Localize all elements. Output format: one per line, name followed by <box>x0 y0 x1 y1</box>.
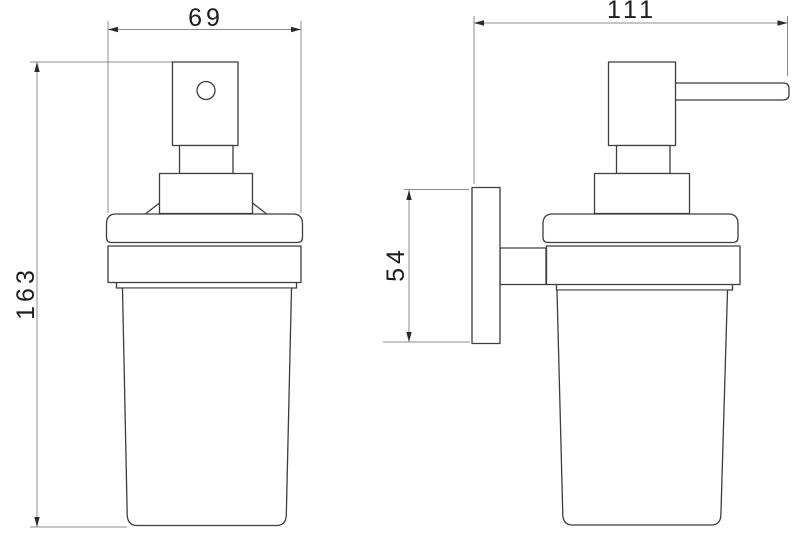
pump-head-side <box>609 62 676 146</box>
holder-lid-front <box>107 214 303 243</box>
glass-cup-side <box>557 291 728 526</box>
pump-neck-side <box>617 146 671 174</box>
arrowhead-bottom <box>406 332 411 342</box>
arrowhead-top <box>406 190 411 200</box>
pump-neck-front <box>180 146 234 174</box>
dimension-label-front-height: 163 <box>12 266 40 320</box>
arrowhead-bottom <box>34 517 39 527</box>
arrowhead-top <box>34 62 39 72</box>
arrowhead-left <box>474 20 484 25</box>
holder-lid-side <box>543 214 738 243</box>
pump-spout-side <box>672 83 789 100</box>
dimension-label-side-depth: 111 <box>607 0 657 24</box>
pump-collar-front <box>160 174 253 214</box>
pump-collar-side <box>595 174 690 214</box>
pump-head-front <box>173 62 239 146</box>
dispenser-drawing: 69 163 111 54 <box>0 0 800 533</box>
arrowhead-right <box>778 20 788 25</box>
glass-rim-front <box>108 246 301 283</box>
glass-rim-step-front <box>117 283 297 289</box>
dimension-label-bracket-height: 54 <box>382 246 410 282</box>
dimension-label-front-width: 69 <box>188 4 224 32</box>
front-view <box>107 62 303 526</box>
wall-mount-plate <box>472 188 500 344</box>
mounting-arm <box>500 248 546 285</box>
side-view <box>472 62 789 525</box>
glass-cup-front <box>123 289 292 526</box>
arrowhead-left <box>108 27 118 32</box>
glass-rim-side <box>547 246 741 285</box>
arrowhead-right <box>291 27 301 32</box>
glass-rim-step-side <box>557 285 733 291</box>
dimension-bracket-height: 54 <box>382 190 470 343</box>
technical-drawing-canvas: 69 163 111 54 <box>0 0 800 533</box>
collar-chamfer-left <box>146 203 160 214</box>
collar-chamfer-right <box>253 203 267 214</box>
